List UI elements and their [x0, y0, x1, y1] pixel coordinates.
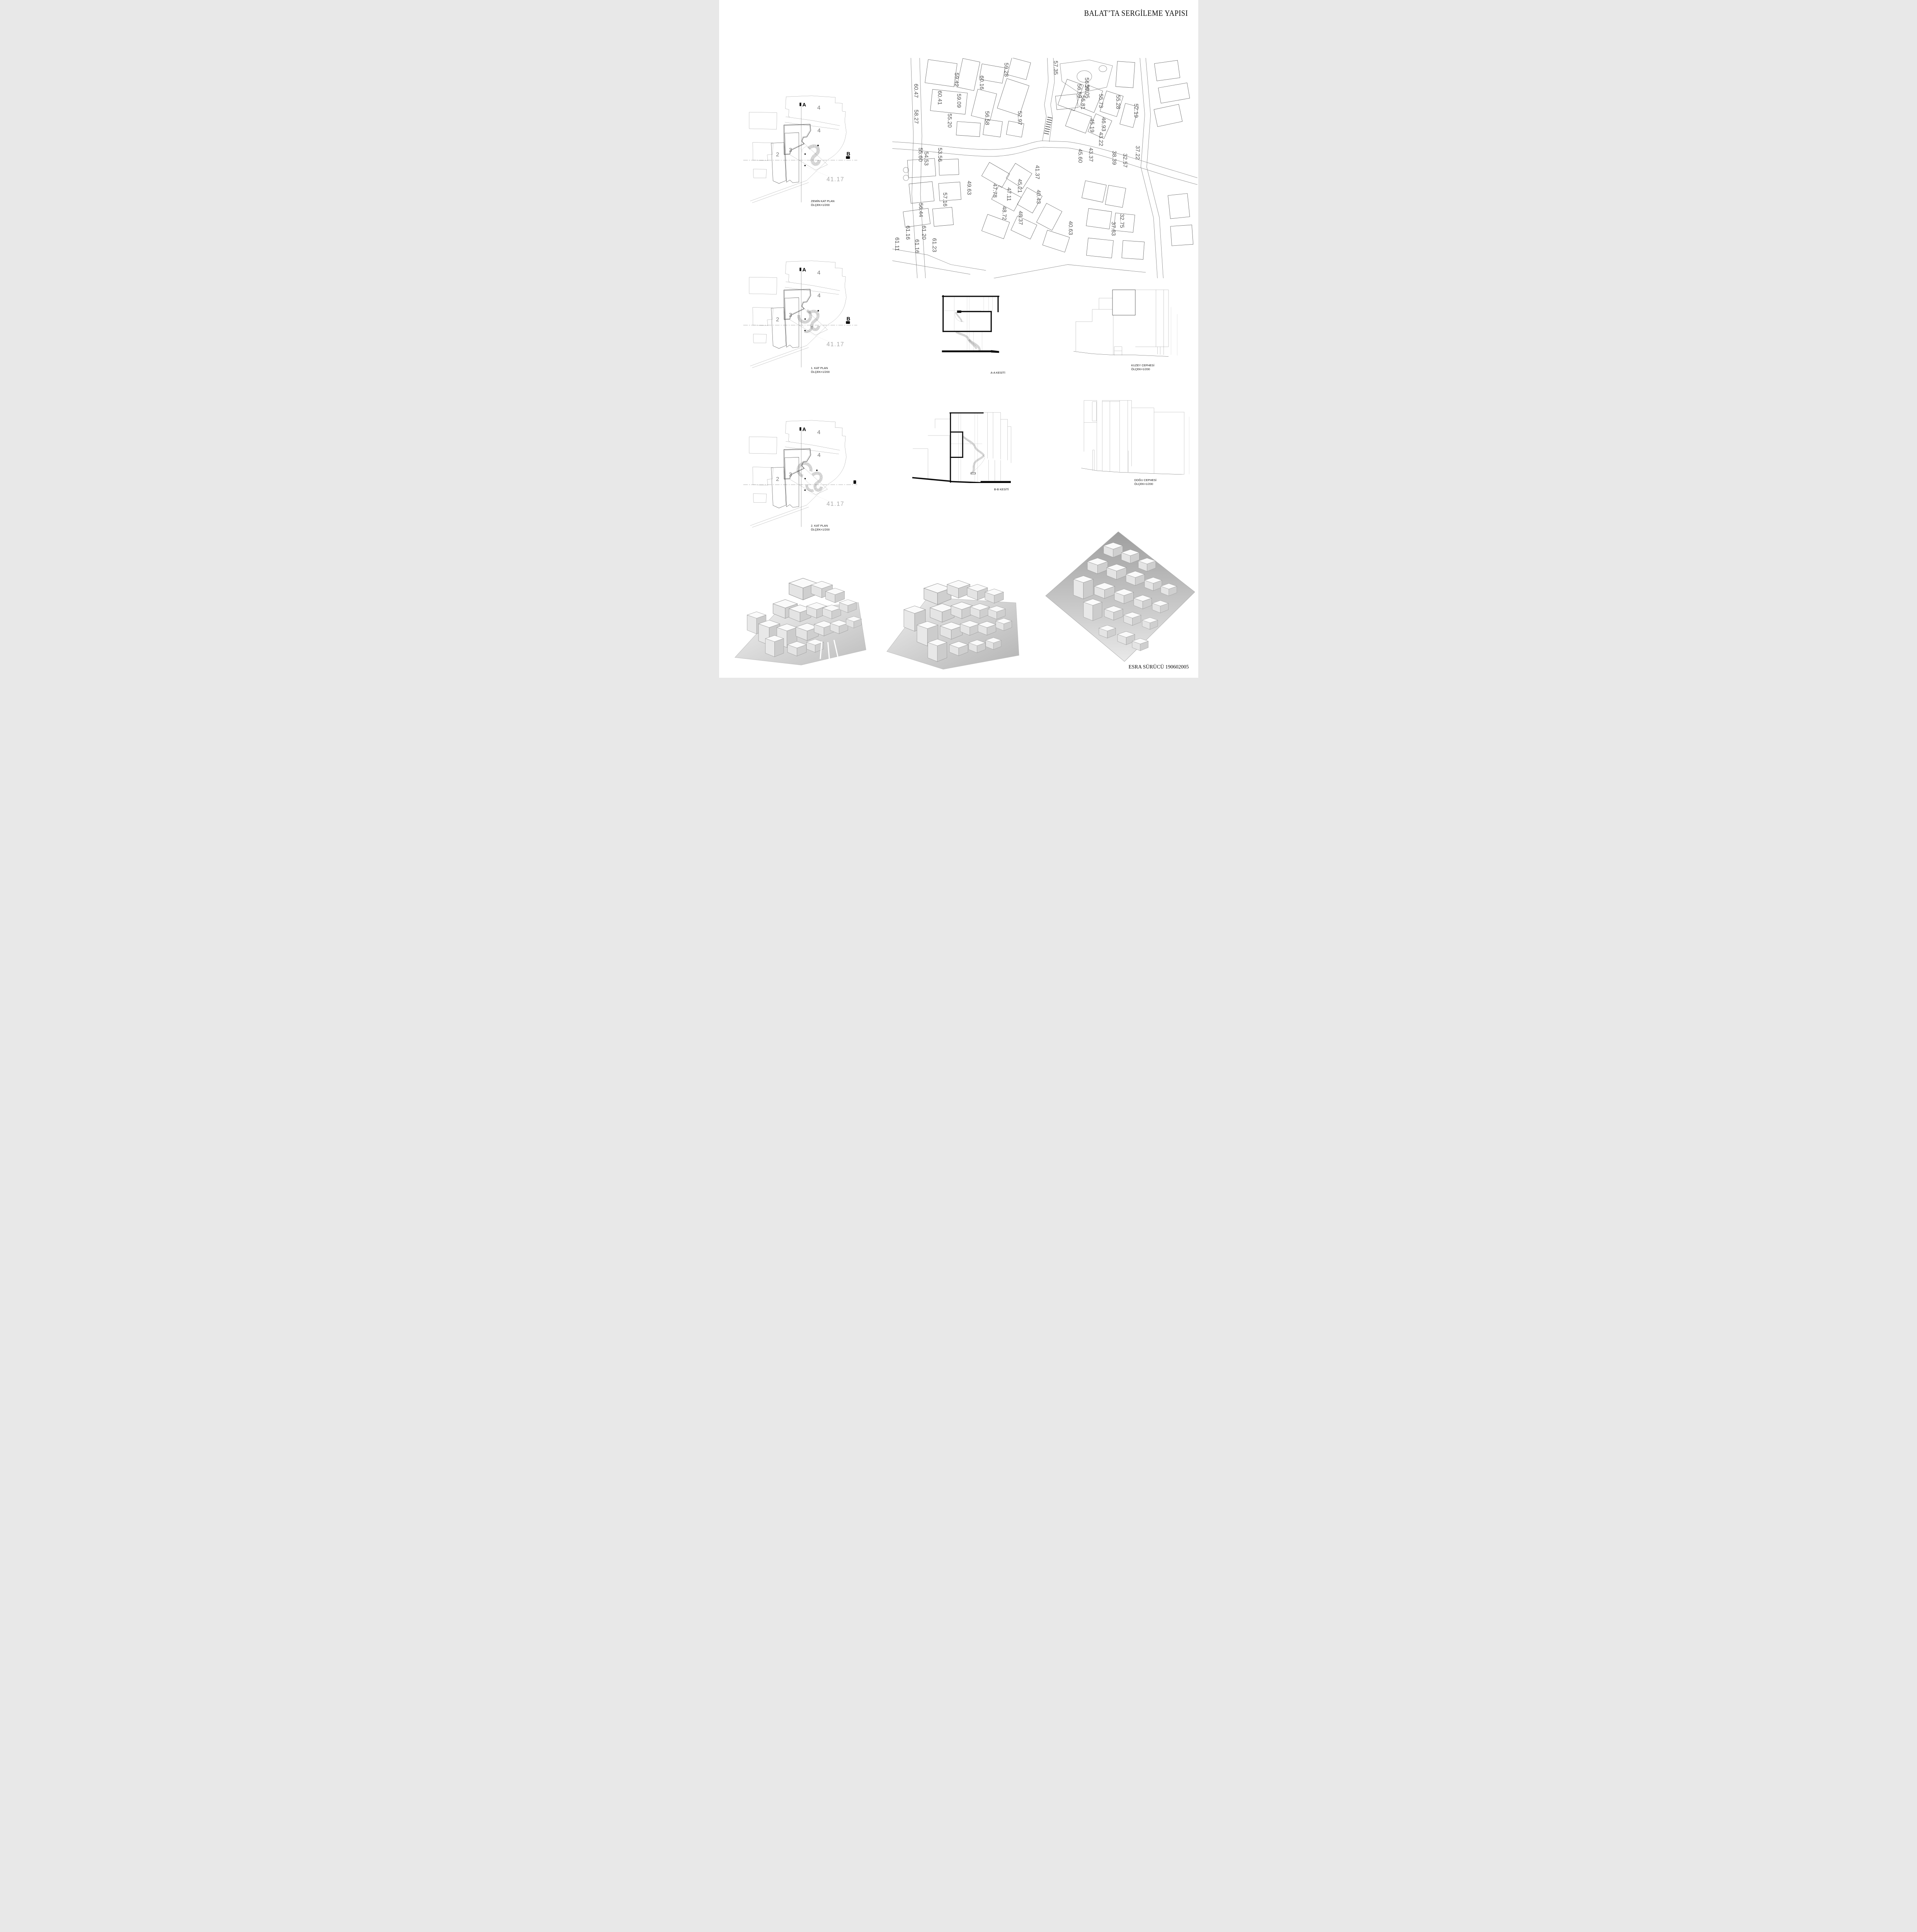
dogu-cephesi-drawing [1072, 388, 1194, 474]
svg-text:40.43: 40.43 [1035, 190, 1041, 204]
kuzey-cephesi-caption: KUZEY CEPHESİÖLÇEK=1/200 [1131, 364, 1155, 371]
svg-text:56.44: 56.44 [917, 203, 924, 217]
svg-text:54.53: 54.53 [923, 151, 929, 166]
svg-text:4: 4 [817, 452, 820, 459]
plan-spot-elevation: 41.17 [826, 176, 844, 183]
svg-text:61.16: 61.16 [913, 239, 920, 253]
svg-text:55.20: 55.20 [946, 114, 953, 128]
svg-text:41.37: 41.37 [1034, 165, 1040, 179]
svg-text:61.20: 61.20 [920, 226, 927, 240]
svg-text:55.73: 55.73 [1097, 94, 1104, 108]
svg-text:43.22: 43.22 [1097, 132, 1104, 146]
svg-text:59.28: 59.28 [1003, 63, 1009, 77]
svg-text:57.35: 57.35 [1052, 61, 1058, 75]
plan1-caption: ZEMİN KAT PLANÖLÇEK=1/200 [811, 199, 835, 207]
svg-text:59.42: 59.42 [953, 73, 959, 87]
svg-text:4: 4 [817, 105, 820, 111]
section-marker-b: B [846, 151, 850, 156]
section-marker-a: A [802, 102, 806, 108]
svg-text:3: 3 [789, 312, 792, 318]
svg-text:55.28: 55.28 [1114, 95, 1121, 109]
svg-text:47.11: 47.11 [1005, 187, 1012, 201]
svg-text:58.27: 58.27 [913, 110, 919, 124]
svg-text:37.83: 37.83 [1110, 222, 1116, 236]
svg-text:61.11: 61.11 [893, 237, 900, 251]
birinci-kat-plan-drawing: A B 4 4 3 2 41.17 [742, 256, 858, 370]
presentation-board: BALAT’TA SERGİLEME YAPISI [719, 0, 1198, 678]
plan2-caption: 1. KAT PLANÖLÇEK=1/200 [811, 366, 830, 374]
svg-text:48.37: 48.37 [1017, 211, 1023, 225]
svg-text:55.60: 55.60 [917, 148, 923, 162]
svg-text:3: 3 [789, 472, 792, 478]
site-map-drawing: 60.47 58.27 60.41 59.42 59.09 55.20 59.2… [892, 58, 1197, 278]
svg-text:2: 2 [776, 316, 779, 323]
svg-text:52.19: 52.19 [1133, 104, 1139, 118]
svg-text:43.37: 43.37 [1087, 148, 1094, 162]
svg-text:61.23: 61.23 [931, 238, 937, 252]
svg-text:32.57: 32.57 [1122, 153, 1128, 168]
svg-text:3: 3 [789, 147, 792, 153]
svg-text:56.58: 56.58 [983, 111, 990, 125]
svg-text:45.21: 45.21 [1016, 179, 1022, 193]
svg-text:45.60: 45.60 [1077, 149, 1083, 163]
svg-text:45.19: 45.19 [1089, 118, 1095, 133]
section-bb-caption: B-B KESİTİ [994, 488, 1009, 492]
svg-text:60.16: 60.16 [978, 75, 984, 90]
svg-text:4: 4 [817, 293, 820, 299]
svg-text:2: 2 [776, 151, 779, 158]
svg-text:4: 4 [817, 430, 820, 436]
svg-text:32.75: 32.75 [1118, 214, 1124, 228]
svg-text:48.72: 48.72 [1001, 206, 1007, 220]
section-aa-drawing [932, 285, 1008, 358]
ikinci-kat-plan-drawing: A 4 4 3 2 41.17 [742, 415, 858, 529]
massing-model-photo-3 [1041, 526, 1198, 665]
dogu-cephesi-caption: DOĞU CEPHESİÖLÇEK=1/200 [1135, 478, 1157, 486]
svg-text:53.56: 53.56 [936, 148, 942, 162]
svg-text:52.97: 52.97 [1016, 111, 1022, 125]
plan-spot-elevation: 41.17 [826, 501, 844, 507]
svg-text:59.09: 59.09 [955, 94, 961, 108]
section-marker-a: A [802, 427, 806, 432]
svg-text:61.16: 61.16 [905, 226, 911, 240]
massing-model-photo-1 [732, 562, 869, 667]
section-aa-caption: A-A KESİTİ [991, 371, 1005, 375]
svg-text:37.22: 37.22 [1134, 146, 1140, 160]
svg-text:40.63: 40.63 [1067, 221, 1073, 235]
svg-text:55.81: 55.81 [1080, 95, 1086, 110]
svg-text:47.78: 47.78 [992, 184, 998, 198]
svg-text:46.93: 46.93 [1100, 117, 1106, 131]
plan-spot-elevation: 41.17 [826, 341, 844, 348]
svg-text:57.16: 57.16 [941, 192, 947, 207]
svg-text:2: 2 [776, 476, 779, 482]
svg-text:60.41: 60.41 [936, 91, 942, 105]
plan3-caption: 2. KAT PLANÖLÇEK=1/200 [811, 524, 830, 532]
kuzey-cephesi-drawing [1066, 277, 1182, 357]
map-spot-elevations: 60.47 58.27 60.41 59.42 59.09 55.20 59.2… [893, 61, 1140, 253]
svg-text:4: 4 [817, 128, 820, 134]
section-marker-b: B [846, 316, 850, 321]
svg-text:60.47: 60.47 [912, 84, 919, 98]
svg-text:4: 4 [817, 270, 820, 276]
svg-text:49.63: 49.63 [966, 181, 972, 195]
svg-text:38.39: 38.39 [1111, 151, 1117, 165]
section-marker-a: A [802, 267, 806, 273]
board-title: BALAT’TA SERGİLEME YAPISI [1084, 9, 1188, 18]
section-bb-drawing [908, 401, 1015, 483]
massing-model-photo-2 [881, 560, 1025, 670]
author-credit: ESRA SÜRÜCÜ 190602005 [1128, 664, 1189, 670]
zemin-kat-plan-drawing: A B 4 4 3 2 41.17 [742, 91, 858, 205]
